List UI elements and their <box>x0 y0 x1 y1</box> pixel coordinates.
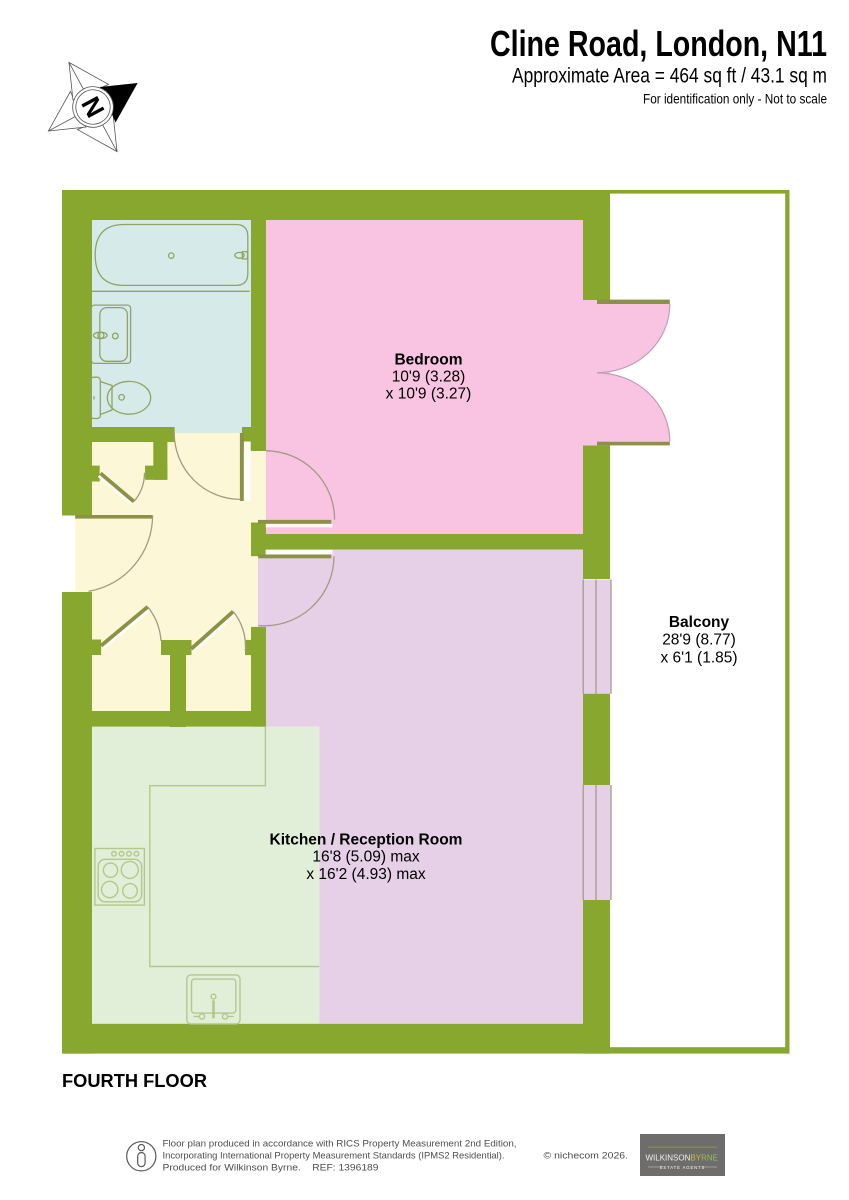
svg-text:Cline Road, London, N11: Cline Road, London, N11 <box>490 23 827 64</box>
svg-text:x 10'9 (3.27): x 10'9 (3.27) <box>386 386 472 403</box>
svg-text:Incorporating International Pr: Incorporating International Property Mea… <box>163 1150 505 1161</box>
svg-text:Kitchen / Reception Room: Kitchen / Reception Room <box>270 832 463 849</box>
svg-text:Balcony: Balcony <box>669 614 730 631</box>
svg-text:10'9 (3.28): 10'9 (3.28) <box>392 368 466 385</box>
svg-text:Approximate Area = 464 sq ft /: Approximate Area = 464 sq ft / 43.1 sq m <box>512 64 827 88</box>
svg-text:Floor plan produced in accorda: Floor plan produced in accordance with R… <box>163 1138 517 1149</box>
svg-text:16'8 (5.09) max: 16'8 (5.09) max <box>312 849 419 866</box>
svg-text:Bedroom: Bedroom <box>394 351 462 368</box>
svg-text:x 16'2 (4.93) max: x 16'2 (4.93) max <box>306 866 426 883</box>
svg-text:x 6'1 (1.85): x 6'1 (1.85) <box>660 649 737 666</box>
svg-text:Produced for Wilkinson Byrne.: Produced for Wilkinson Byrne. REF: 13961… <box>163 1162 379 1173</box>
svg-text:For identification only - Not: For identification only - Not to scale <box>643 91 827 107</box>
svg-text:© nichecom 2026.: © nichecom 2026. <box>544 1150 629 1161</box>
svg-text:WILKINSONBYRNE: WILKINSONBYRNE <box>646 1154 718 1163</box>
svg-text:28'9 (8.77): 28'9 (8.77) <box>662 632 736 649</box>
svg-text:FOURTH FLOOR: FOURTH FLOOR <box>62 1070 207 1091</box>
svg-text:ESTATE AGENTS: ESTATE AGENTS <box>660 1165 706 1170</box>
